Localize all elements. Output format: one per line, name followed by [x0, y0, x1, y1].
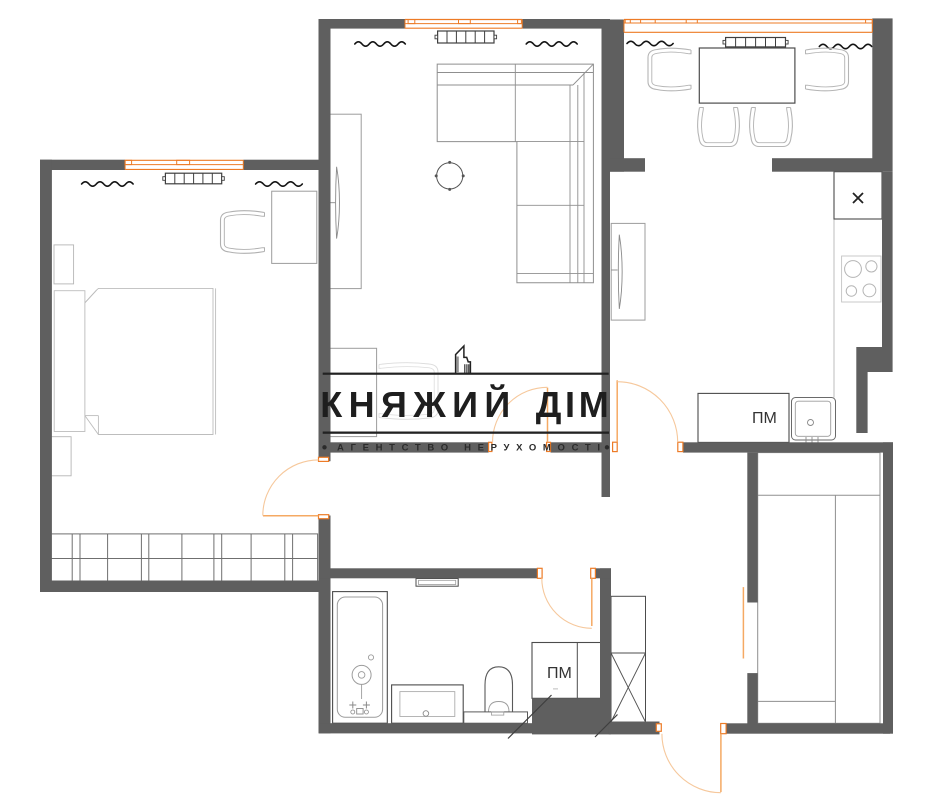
svg-text:ПМ: ПМ: [752, 410, 777, 427]
svg-text:ПМ: ПМ: [547, 665, 572, 682]
svg-text:АГЕНТСТВО НЕРУХОМОСТІ: АГЕНТСТВО НЕРУХОМОСТІ: [337, 443, 600, 454]
svg-text:ДІМ: ДІМ: [536, 384, 609, 425]
